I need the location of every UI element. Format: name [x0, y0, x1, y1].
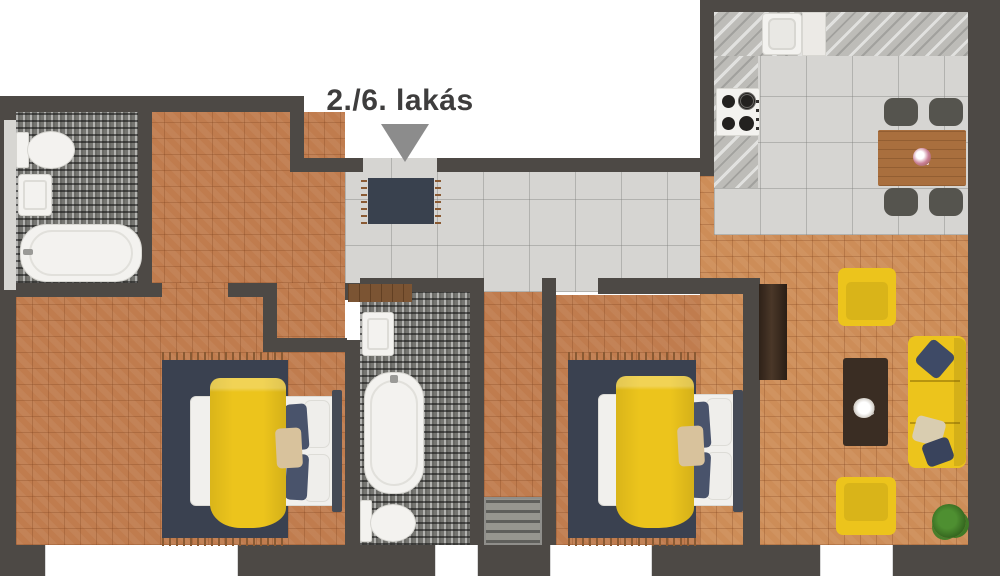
armchair	[838, 268, 896, 326]
wall-bottom-1	[0, 545, 45, 576]
burner	[722, 95, 735, 108]
rug-fringe	[162, 538, 288, 546]
wall-nook-vertical	[263, 283, 277, 338]
wall-bathroom2-left-b	[345, 340, 360, 545]
coffee-table-decor	[853, 398, 875, 418]
floor-plan: 2./6. lakás	[0, 0, 1000, 576]
bathtub-faucet	[390, 375, 398, 383]
armchair-seat	[846, 282, 888, 320]
wall-bottom-5	[893, 545, 1000, 576]
hall-wardrobe	[348, 284, 412, 302]
toilet	[370, 504, 416, 542]
burner	[722, 117, 735, 130]
wall-outer-top-right	[700, 0, 1000, 12]
doormat-fringe-left	[361, 178, 367, 224]
table-flowers	[913, 148, 931, 166]
window-bedroom1	[45, 545, 238, 576]
window-bedroom2	[550, 545, 652, 576]
bedroom1-duvet	[210, 378, 286, 528]
tall-wardrobe	[759, 284, 787, 380]
kitchen-sink-basin	[768, 18, 796, 50]
rug-fringe	[162, 352, 288, 360]
wall-kitchen-left	[700, 0, 714, 176]
dining-chair	[929, 188, 963, 216]
pillow	[677, 425, 705, 466]
wall-outer-top-left	[0, 96, 304, 112]
rug-fringe	[568, 352, 696, 360]
sink-basin	[367, 318, 389, 350]
armchair	[836, 477, 896, 535]
wall-bathroom2-right	[470, 292, 484, 545]
wall-hall-top-left	[304, 158, 363, 172]
wall-outer-right	[968, 0, 1000, 576]
kitchen-counter-top	[714, 12, 968, 56]
wall-bedroom2-right	[743, 278, 760, 545]
bedroom1-headboard	[332, 390, 342, 512]
corridor-floor	[484, 292, 542, 497]
sofa-seam	[910, 380, 960, 382]
wall-bedroom1-top-a	[16, 283, 162, 297]
entrance-arrow-icon	[381, 124, 429, 162]
wall-nook-horizontal	[263, 338, 347, 352]
wall-bedroom2-left	[542, 278, 556, 545]
bathtub-inner	[29, 230, 133, 276]
wall-bottom-4	[652, 545, 820, 576]
vestibule-floor	[148, 112, 345, 283]
burner	[739, 116, 754, 131]
plan-title: 2./6. lakás	[300, 84, 500, 118]
rug-fringe	[568, 538, 696, 546]
window-bathroom1-left	[4, 120, 16, 290]
bedroom2-headboard	[733, 390, 743, 512]
wall-bottom-3	[478, 545, 550, 576]
pillow	[275, 427, 303, 468]
closet-shelf-unit	[486, 499, 540, 543]
wall-bedroom2-top	[598, 278, 760, 294]
toilet	[27, 131, 75, 169]
doormat-fringe-right	[435, 178, 441, 224]
sink-basin	[23, 180, 47, 210]
sofa-back	[954, 338, 966, 466]
bathtub-inner	[370, 380, 418, 486]
dining-chair	[884, 98, 918, 126]
wall-bathroom1-right	[138, 112, 152, 297]
window-bathroom2	[435, 545, 478, 576]
cooktop-knobs	[756, 98, 759, 130]
burner	[738, 92, 756, 110]
kitchen-cabinet	[802, 12, 826, 56]
armchair-seat	[844, 483, 888, 521]
bathtub-faucet	[23, 249, 33, 255]
doormat	[368, 178, 434, 224]
wall-bottom-2	[238, 545, 435, 576]
potted-plant	[932, 504, 966, 538]
dining-chair	[884, 188, 918, 216]
dining-chair	[929, 98, 963, 126]
wall-hall-top-right	[437, 158, 700, 172]
window-living-room	[820, 545, 893, 576]
